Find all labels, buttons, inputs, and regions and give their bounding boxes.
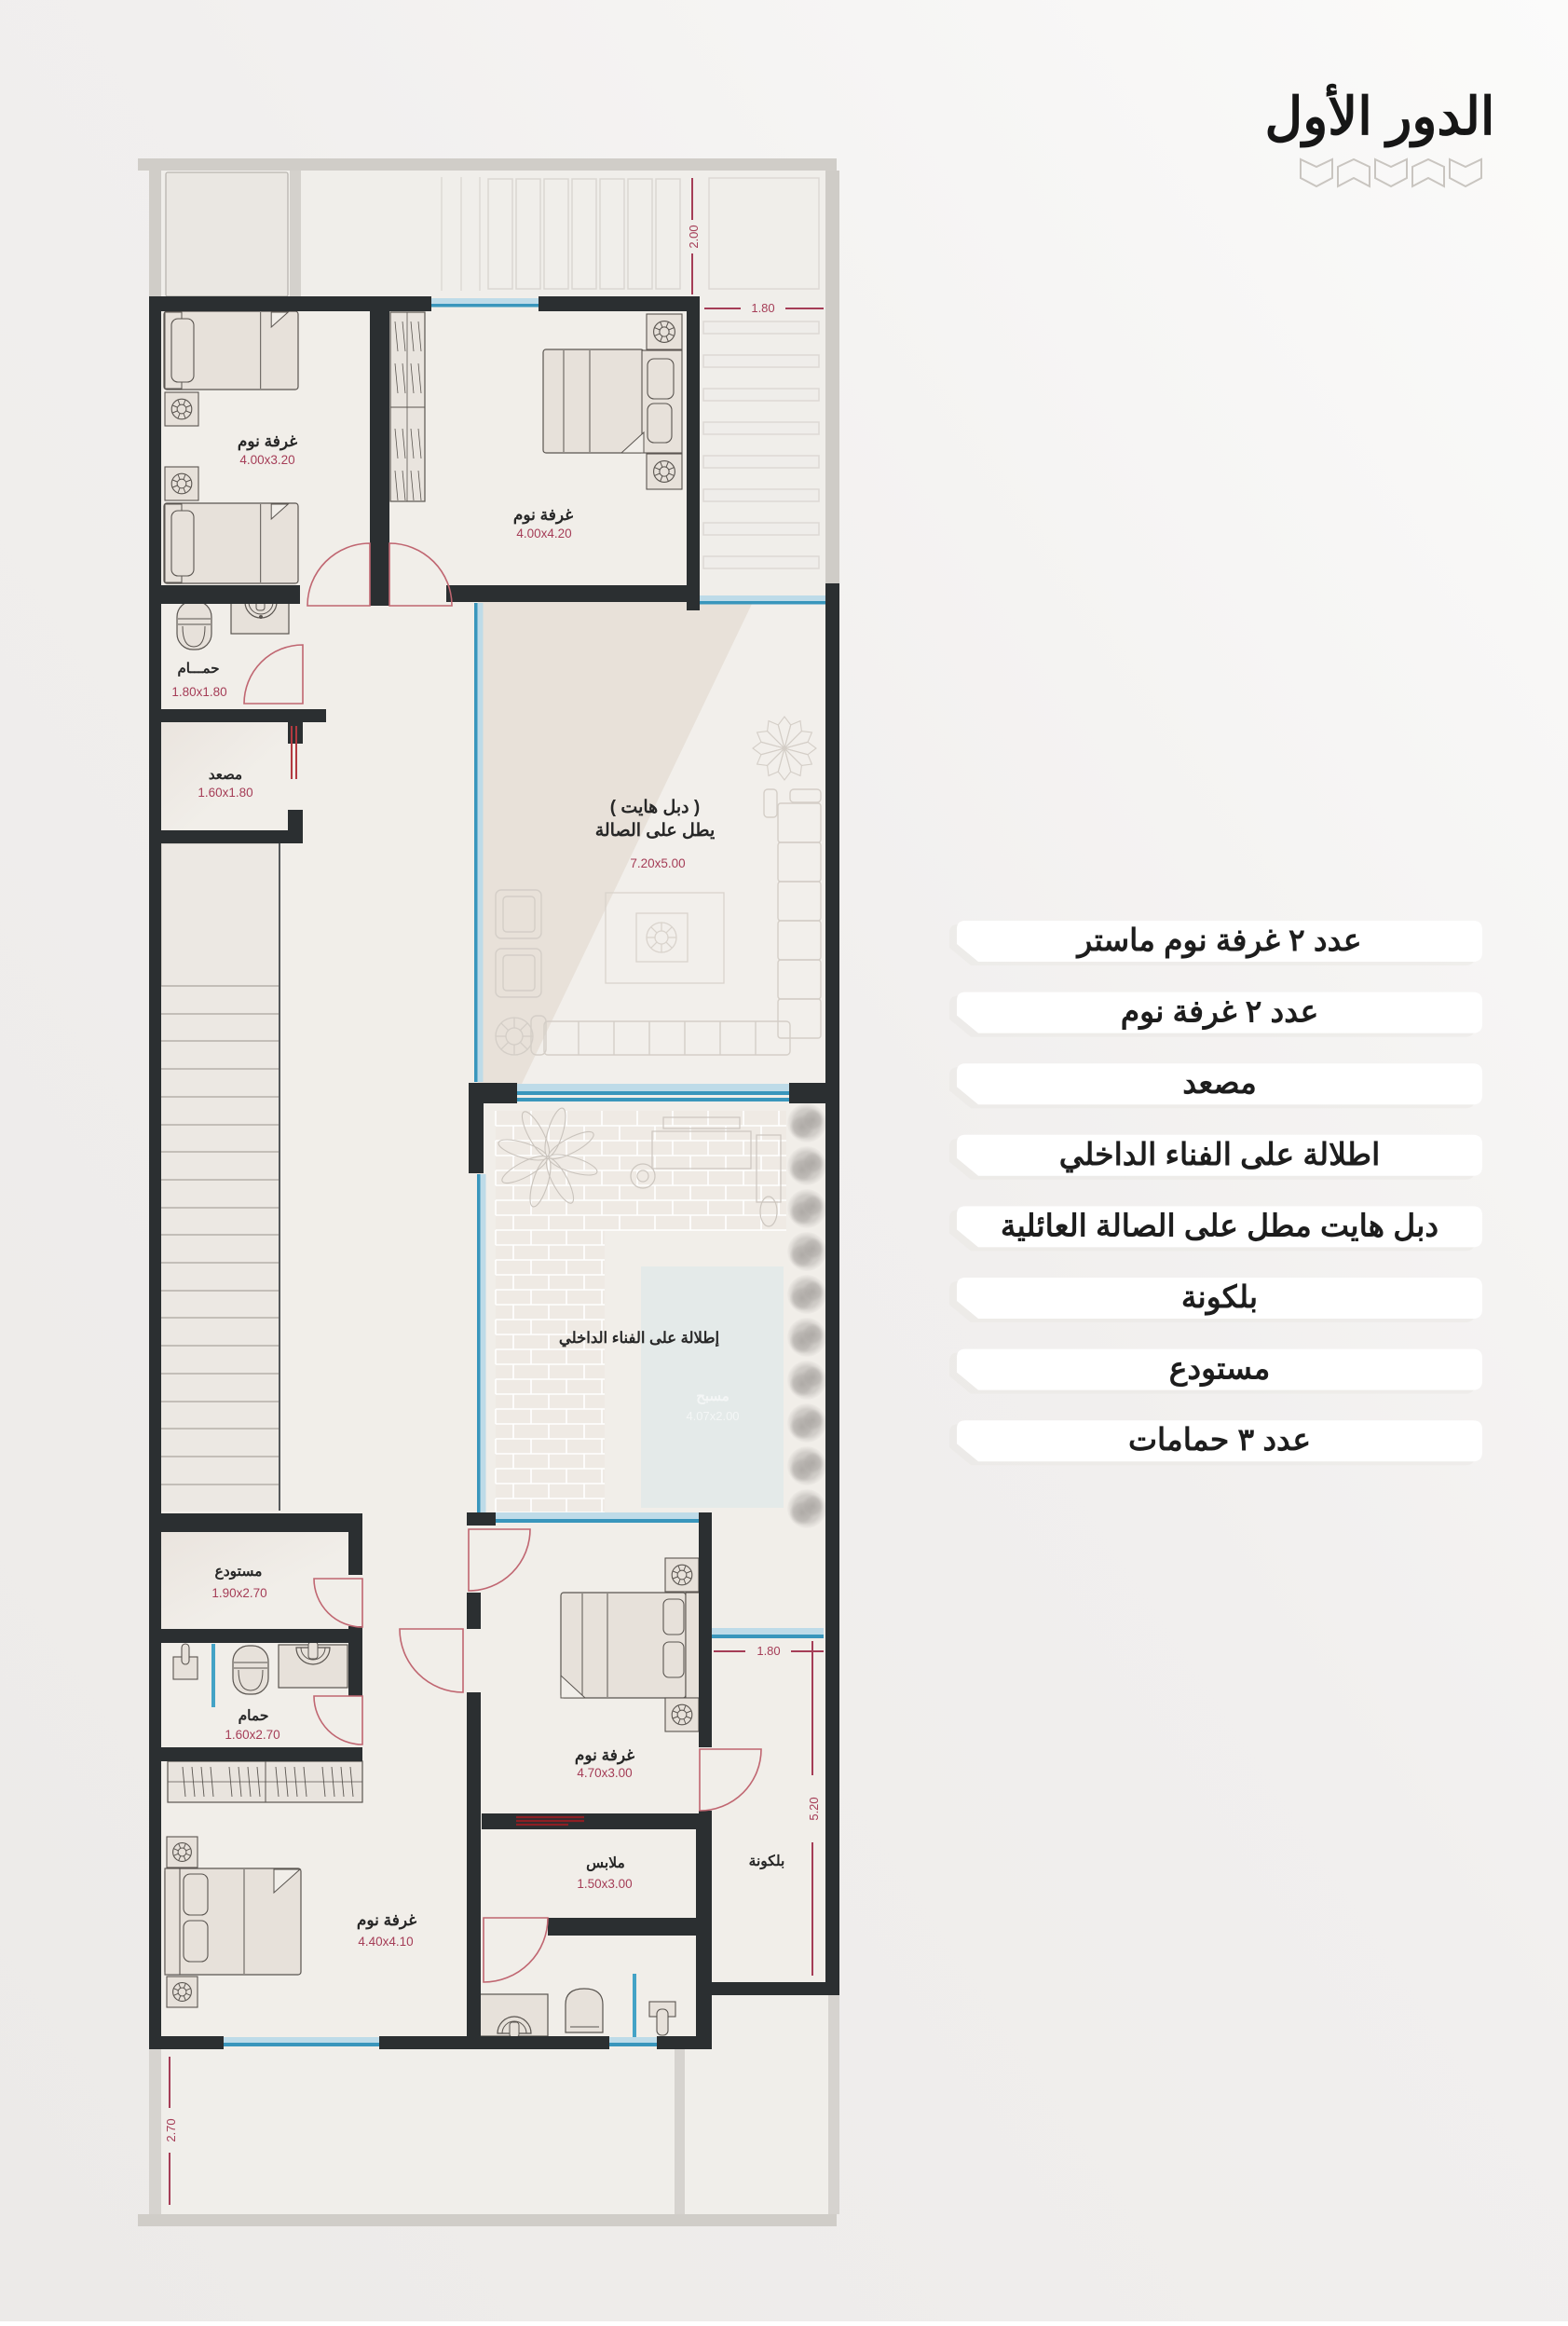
- svg-text:عدد ٢ غرفة نوم ماستر: عدد ٢ غرفة نوم ماستر: [1075, 923, 1361, 959]
- svg-text:1.80: 1.80: [751, 301, 774, 315]
- svg-text:حمام: حمام: [239, 1708, 269, 1725]
- svg-text:حمـــام: حمـــام: [178, 661, 220, 677]
- svg-text:مصعد: مصعد: [209, 767, 242, 783]
- svg-text:4.07x2.00: 4.07x2.00: [686, 1409, 739, 1423]
- svg-text:مصعد: مصعد: [1182, 1065, 1257, 1100]
- svg-text:ملابس: ملابس: [586, 1855, 625, 1872]
- svg-text:مسبح: مسبح: [696, 1389, 729, 1404]
- svg-text:دبل هايت مطل على الصالة العائل: دبل هايت مطل على الصالة العائلية: [1001, 1208, 1438, 1242]
- svg-text:( دبل هايت ): ( دبل هايت ): [610, 798, 700, 817]
- svg-text:غرفة نوم: غرفة نوم: [575, 1746, 634, 1765]
- svg-text:يطل على الصالة: يطل على الصالة: [595, 821, 716, 841]
- svg-text:1.80x1.80: 1.80x1.80: [171, 685, 226, 699]
- svg-text:غرفة نوم: غرفة نوم: [357, 1911, 416, 1930]
- svg-text:4.00x4.20: 4.00x4.20: [516, 527, 571, 540]
- svg-text:4.70x3.00: 4.70x3.00: [577, 1766, 632, 1780]
- svg-text:1.90x2.70: 1.90x2.70: [211, 1586, 266, 1600]
- svg-text:غرفة نوم: غرفة نوم: [238, 432, 297, 451]
- svg-text:2.00: 2.00: [687, 225, 701, 248]
- svg-text:4.40x4.10: 4.40x4.10: [358, 1935, 413, 1949]
- svg-text:إطلالة على الفناء الداخلي: إطلالة على الفناء الداخلي: [559, 1330, 720, 1348]
- svg-text:4.00x3.20: 4.00x3.20: [239, 453, 294, 467]
- svg-text:1.60x2.70: 1.60x2.70: [225, 1728, 280, 1742]
- svg-text:2.70: 2.70: [164, 2118, 178, 2141]
- svg-text:5.20: 5.20: [807, 1797, 821, 1820]
- svg-text:7.20x5.00: 7.20x5.00: [630, 856, 685, 870]
- svg-text:1.60x1.80: 1.60x1.80: [198, 786, 252, 800]
- svg-text:مستودع: مستودع: [1169, 1351, 1271, 1388]
- svg-text:عدد ٣ حمامات: عدد ٣ حمامات: [1128, 1422, 1311, 1457]
- svg-text:بلكونة: بلكونة: [749, 1854, 785, 1870]
- svg-text:الدور الأول: الدور الأول: [1265, 83, 1495, 148]
- svg-text:1.50x3.00: 1.50x3.00: [577, 1877, 632, 1891]
- svg-text:عدد ٢ غرفة نوم: عدد ٢ غرفة نوم: [1121, 994, 1319, 1031]
- svg-text:غرفة نوم: غرفة نوم: [513, 506, 573, 525]
- svg-text:1.80: 1.80: [757, 1644, 780, 1658]
- svg-text:مستودع: مستودع: [215, 1564, 263, 1580]
- svg-text:اطلالة على الفناء الداخلي: اطلالة على الفناء الداخلي: [1059, 1137, 1381, 1173]
- svg-text:بلكونة: بلكونة: [1181, 1279, 1258, 1316]
